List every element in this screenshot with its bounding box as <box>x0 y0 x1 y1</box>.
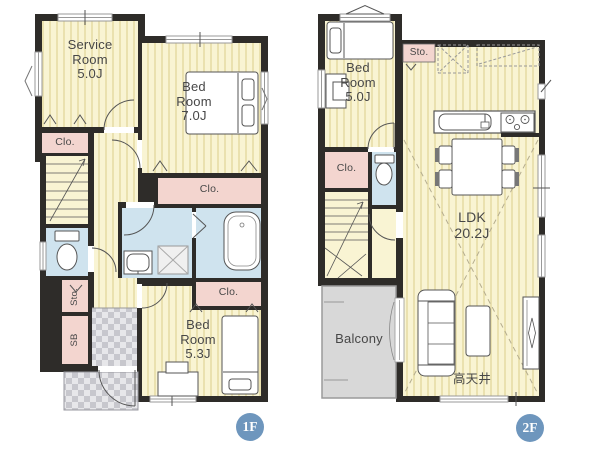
label-closet-2f: Clo. <box>325 163 368 175</box>
floor2-badge-text: 2F <box>523 420 538 436</box>
label-storage-2f: Sto. <box>403 47 435 58</box>
label-closet-service: Clo. <box>42 137 88 149</box>
label-closet-bath: Clo. <box>196 287 261 299</box>
label-storage-1f: Sto. <box>62 282 88 312</box>
label-shoe-box: SB <box>62 325 88 355</box>
porch <box>64 372 138 410</box>
label-ldk: LDK 20.2J <box>430 210 514 241</box>
hall-lower <box>94 278 137 308</box>
room-genkan <box>92 308 137 366</box>
floor1-badge: 1F <box>236 413 264 441</box>
single-bed-icon-2f <box>327 22 393 59</box>
room-stairs-1f <box>46 156 88 224</box>
washbasin-icon <box>124 251 152 274</box>
label-bedroom-7: Bed Room 7.0J <box>152 80 236 124</box>
coffee-table-icon <box>466 306 490 356</box>
floorplan-image: Service Room 5.0J Bed Room 7.0J Bed Room… <box>0 0 600 450</box>
room-bedroom53-nook <box>142 286 192 312</box>
kitchen-counter-icon <box>434 111 539 137</box>
toilet-icon-1f <box>55 231 79 270</box>
bathtub-icon <box>224 212 260 270</box>
label-bedroom-5-2f: Bed Room 5.0J <box>318 61 398 105</box>
stove-icon <box>501 113 534 132</box>
label-closet-bedroom7: Clo. <box>158 184 261 196</box>
sofa-icon <box>418 290 455 376</box>
hall-mid <box>94 202 118 282</box>
hall-upper <box>94 133 138 202</box>
label-balcony: Balcony <box>320 332 398 347</box>
floor2-badge: 2F <box>516 414 544 442</box>
hall-2f <box>372 209 396 278</box>
floor1-badge-text: 1F <box>243 419 258 435</box>
label-high-ceiling: 高天井 <box>430 372 514 386</box>
label-service-room: Service Room 5.0J <box>48 38 132 82</box>
label-bedroom-53: Bed Room 5.3J <box>156 318 240 362</box>
tv-board-icon <box>523 297 539 369</box>
washing-machine-icon <box>158 246 188 274</box>
bay-window-mark <box>346 6 384 15</box>
